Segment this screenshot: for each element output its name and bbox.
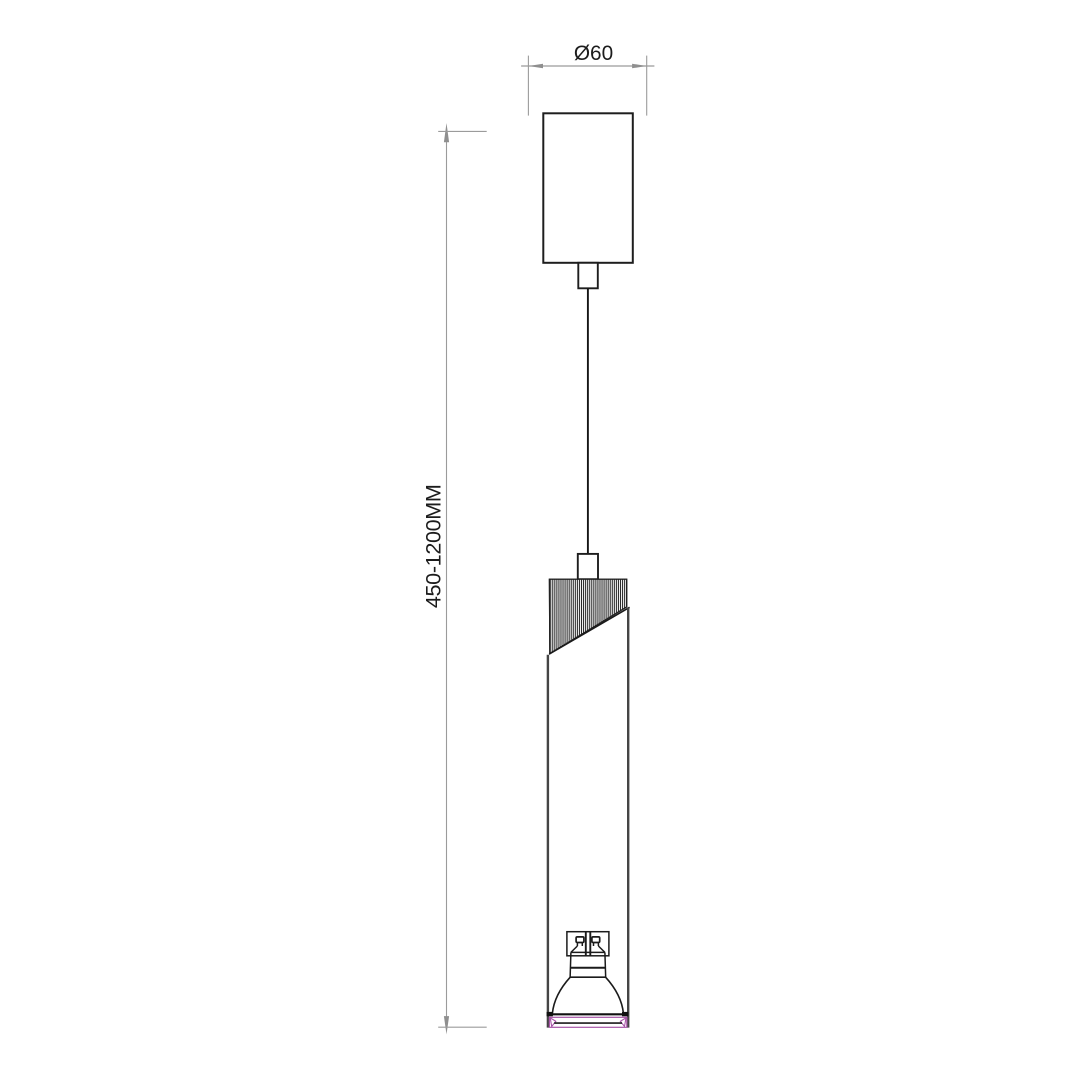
svg-text:450-1200MM: 450-1200MM [420, 484, 445, 608]
svg-text:Ø60: Ø60 [574, 42, 613, 65]
